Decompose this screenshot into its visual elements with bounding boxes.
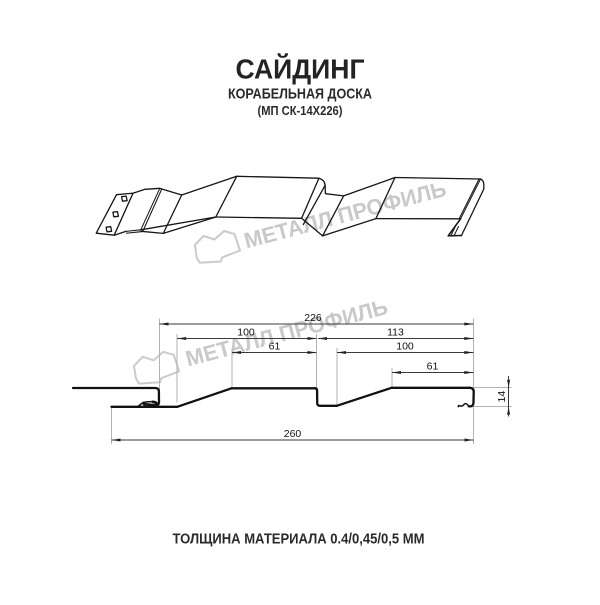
svg-text:61: 61 [427, 361, 439, 373]
svg-text:113: 113 [387, 327, 404, 339]
svg-text:ТОЛЩИНА МАТЕРИАЛА 0.4/0,45/0,5: ТОЛЩИНА МАТЕРИАЛА 0.4/0,45/0,5 ММ [173, 532, 425, 548]
svg-text:100: 100 [396, 341, 414, 353]
svg-text:САЙДИНГ: САЙДИНГ [236, 52, 365, 84]
svg-text:226: 226 [304, 312, 322, 324]
svg-text:61: 61 [269, 341, 281, 353]
svg-text:100: 100 [237, 327, 255, 339]
svg-text:КОРАБЕЛЬНАЯ ДОСКА: КОРАБЕЛЬНАЯ ДОСКА [228, 86, 372, 103]
svg-text:МЕТАЛЛ ПРОФИЛЬ: МЕТАЛЛ ПРОФИЛЬ [183, 294, 391, 371]
svg-text:14: 14 [496, 391, 508, 403]
svg-text:260: 260 [284, 428, 302, 440]
svg-text:МЕТАЛЛ ПРОФИЛЬ: МЕТАЛЛ ПРОФИЛЬ [241, 176, 449, 253]
svg-text:(МП СК-14Х226): (МП СК-14Х226) [258, 104, 343, 118]
